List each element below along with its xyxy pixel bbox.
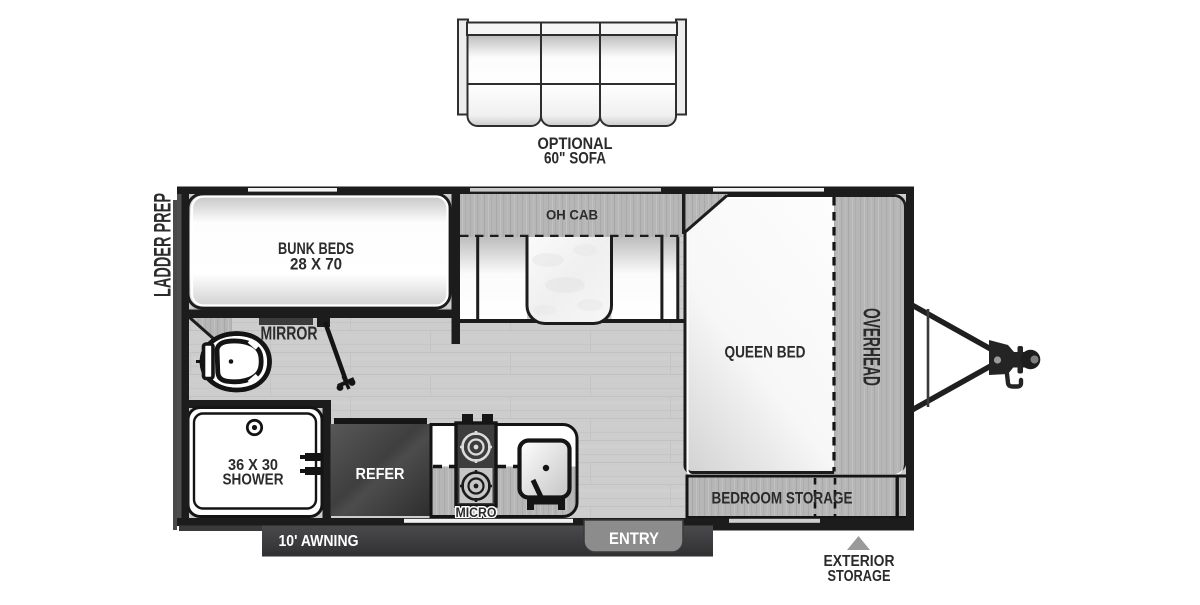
svg-text:60" SOFA: 60" SOFA	[544, 149, 606, 168]
svg-text:10' AWNING: 10' AWNING	[279, 533, 359, 550]
svg-text:STORAGE: STORAGE	[828, 568, 891, 585]
svg-text:ENTRY: ENTRY	[609, 530, 659, 548]
svg-text:BEDROOM STORAGE: BEDROOM STORAGE	[712, 489, 853, 508]
svg-text:OVERHEAD: OVERHEAD	[858, 308, 885, 386]
svg-text:OH CAB: OH CAB	[546, 207, 598, 223]
svg-text:SHOWER: SHOWER	[223, 472, 284, 489]
svg-text:LADDER PREP: LADDER PREP	[150, 193, 177, 297]
svg-text:QUEEN BED: QUEEN BED	[725, 344, 806, 362]
svg-text:MIRROR: MIRROR	[261, 323, 318, 344]
svg-text:REFER: REFER	[356, 466, 405, 483]
svg-text:MICRO: MICRO	[456, 505, 497, 520]
svg-text:28 X 70: 28 X 70	[290, 256, 342, 274]
